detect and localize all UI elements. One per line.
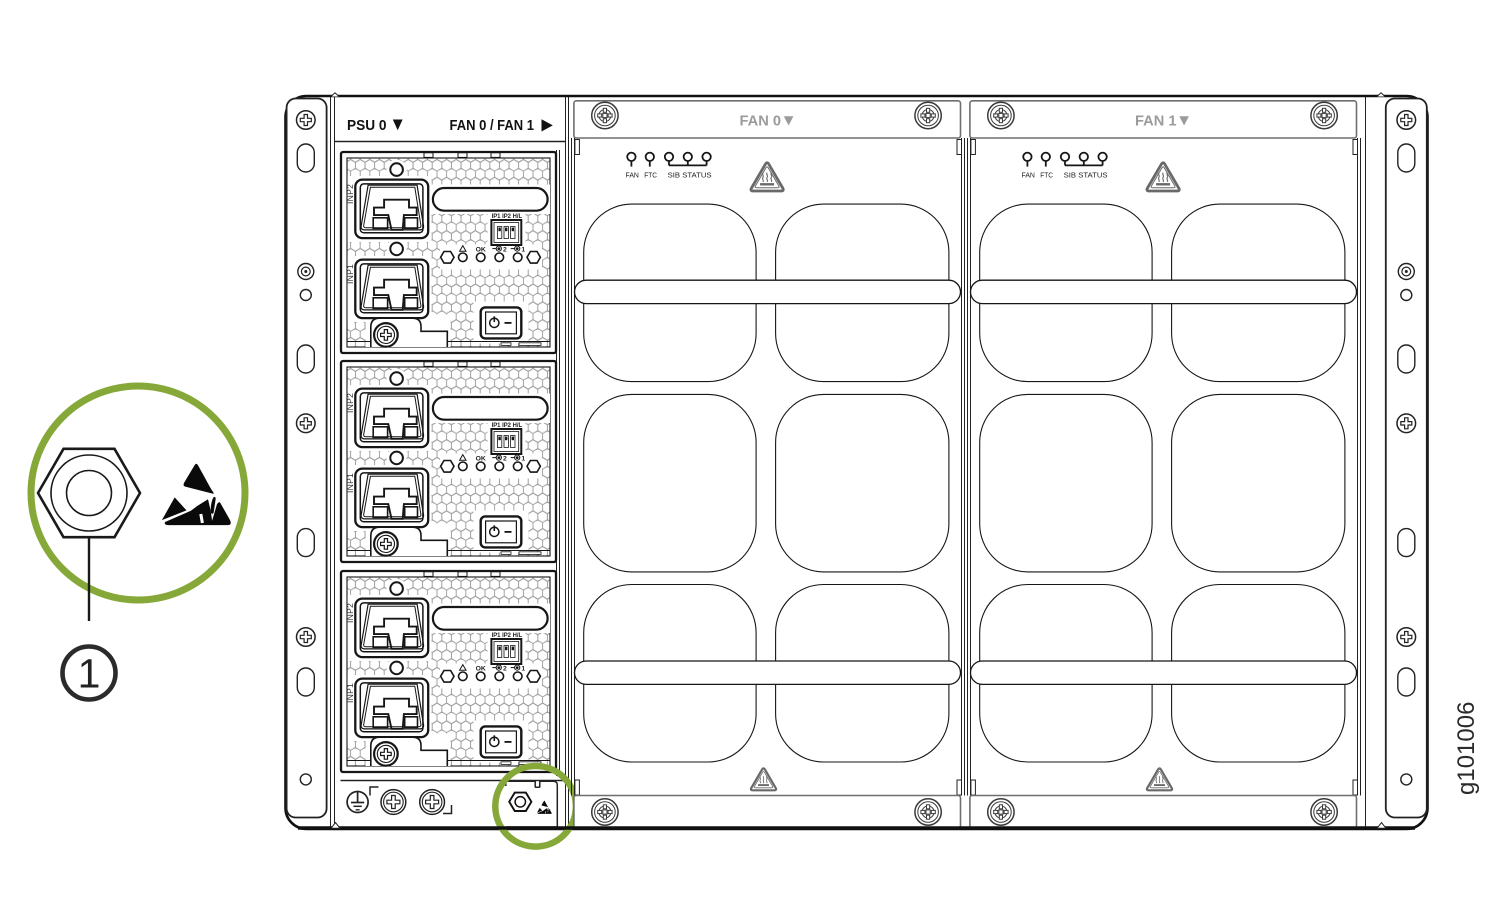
svg-text:PSU 0: PSU 0	[347, 117, 387, 134]
svg-text:FAN 1: FAN 1	[1135, 114, 1177, 130]
svg-text:FAN 0 / FAN 1: FAN 0 / FAN 1	[450, 118, 535, 134]
svg-text:FAN 0: FAN 0	[740, 114, 782, 130]
svg-text:1: 1	[78, 651, 101, 697]
svg-text:g101006: g101006	[1453, 702, 1480, 795]
